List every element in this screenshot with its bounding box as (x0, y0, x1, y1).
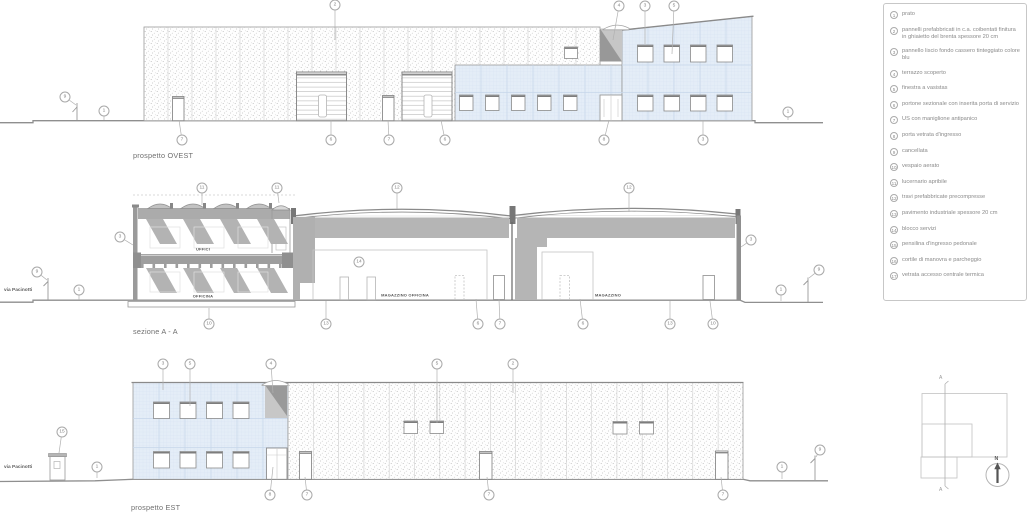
west-elevation-title: prospetto OVEST (133, 151, 193, 160)
exit-door (480, 452, 493, 480)
legend-item: 6 portone sezionale con inserita porta d… (890, 101, 1020, 109)
fence-post (811, 456, 816, 481)
entrance-door (600, 95, 622, 121)
barrel-skylight (603, 25, 629, 30)
legend-item: 4 terrazzo scoperto (890, 70, 1020, 78)
key-plan-outline (922, 394, 1007, 458)
legend-item: 3 pannello liscio fondo cassero tinteggi… (890, 48, 1020, 62)
wall-cut (293, 217, 315, 283)
drawing-canvas (0, 0, 1030, 516)
legend-item-number: 4 (890, 70, 898, 78)
legend-item-number: 14 (890, 226, 898, 234)
legend-item-text: pensilina d'ingresso pedonale (902, 241, 977, 248)
service-block (313, 250, 487, 300)
legend-item: 11 lucernario apribile (890, 179, 1020, 187)
legend: 1 prato 2 pannelli prefabbricati in c.a.… (883, 3, 1027, 301)
legend-item-number: 9 (890, 148, 898, 156)
legend-item-text: lucernario apribile (902, 179, 947, 186)
key-plan-lower (921, 457, 957, 478)
section-aa-title: sezione A - A (133, 327, 178, 336)
key-plan (921, 381, 1009, 489)
ground-line (0, 300, 823, 302)
street-label: via Pacinotti (4, 288, 32, 293)
ventilated-foundation (128, 302, 295, 308)
legend-item-text: vetrata accesso centrale termica (902, 272, 984, 279)
section-aa-drawing (0, 195, 823, 307)
sectional-door (402, 72, 452, 121)
exit-door (300, 452, 312, 480)
legend-item: 15 pensilina d'ingresso pedonale (890, 241, 1020, 249)
legend-item-text: cancellata (902, 148, 928, 155)
end-wall-cut (737, 216, 742, 301)
legend-item-number: 5 (890, 85, 898, 93)
legend-item: 12 travi prefabbricate precompresse (890, 194, 1020, 202)
legend-item-text: prato (902, 11, 915, 18)
legend-item-text: finestra a vasistas (902, 85, 948, 92)
legend-item: 7 US con maniglione antipanico (890, 116, 1020, 124)
exit-door (716, 451, 729, 479)
exit-door (173, 97, 185, 121)
exit-door (383, 96, 395, 121)
legend-item-text: terrazzo scoperto (902, 70, 946, 77)
roof-band (299, 218, 509, 239)
legend-item-number: 16 (890, 257, 898, 265)
legend-item: 2 pannelli prefabbricati in c.a. coibent… (890, 27, 1020, 41)
legend-item-text: pavimento industriale spessore 20 cm (902, 210, 997, 217)
fence-post (73, 103, 78, 120)
legend-item: 13 pavimento industriale spessore 20 cm (890, 210, 1020, 218)
street-label: via Pacinotti (4, 465, 32, 470)
legend-item: 17 vetrata accesso centrale termica (890, 272, 1020, 280)
section-marker-top: A (939, 375, 942, 381)
barrel-skylight (262, 380, 288, 385)
west-elevation-drawing (0, 16, 823, 123)
legend-item: 14 blocco servizi (890, 226, 1020, 234)
legend-item-number: 13 (890, 210, 898, 218)
steel-joint (510, 206, 516, 224)
legend-item-number: 8 (890, 132, 898, 140)
legend-item-number: 2 (890, 27, 898, 35)
legend-item: 9 cancellata (890, 148, 1020, 156)
fence-post (804, 278, 809, 303)
legend-item-text: blocco servizi (902, 226, 936, 233)
legend-item-number: 15 (890, 241, 898, 249)
legend-item-number: 17 (890, 272, 898, 280)
key-plan-inner (922, 424, 972, 457)
legend-item: 10 vespaio aerato (890, 163, 1020, 171)
legend-item-number: 3 (890, 48, 898, 56)
legend-item-text: portone sezionale con inserita porta di … (902, 101, 1019, 108)
roof-band (517, 218, 735, 239)
legend-item-number: 11 (890, 179, 898, 187)
column-cut (515, 238, 537, 300)
east-elevation-drawing (0, 380, 828, 481)
legend-item-text: pannello liscio fondo cassero tinteggiat… (902, 48, 1020, 62)
gatehouse (49, 454, 67, 481)
section-marker-bottom: A (939, 487, 942, 493)
east-elevation-title: prospetto EST (131, 503, 180, 512)
exit-door (494, 276, 505, 300)
legend-item-number: 12 (890, 194, 898, 202)
legend-item-text: cortile di manovra e parcheggio (902, 257, 981, 264)
legend-item-text: porta vetrata d'ingresso (902, 132, 961, 139)
north-arrow (986, 463, 1009, 487)
legend-item-number: 7 (890, 116, 898, 124)
legend-item-number: 6 (890, 101, 898, 109)
legend-item: 16 cortile di manovra e parcheggio (890, 257, 1020, 265)
legend-item-text: vespaio aerato (902, 163, 939, 170)
legend-item: 5 finestra a vasistas (890, 85, 1020, 93)
legend-item-number: 10 (890, 163, 898, 171)
sectional-door (297, 72, 347, 121)
legend-item-text: pannelli prefabbricati in c.a. coibentat… (902, 27, 1020, 41)
legend-item-text: travi prefabbricate precompresse (902, 194, 985, 201)
fence-post (44, 278, 49, 300)
legend-item: 1 prato (890, 11, 1020, 19)
legend-item-text: US con maniglione antipanico (902, 116, 977, 123)
section-cut-line (945, 381, 949, 489)
architectural-drawing-sheet: prospetto OVEST sezione A - A prospetto … (0, 0, 1030, 516)
entrance-door (267, 448, 288, 479)
legend-item: 8 porta vetrata d'ingresso (890, 132, 1020, 140)
office-section (132, 195, 295, 300)
north-label: N (995, 456, 999, 462)
legend-item-number: 1 (890, 11, 898, 19)
warehouse-section (291, 206, 741, 301)
